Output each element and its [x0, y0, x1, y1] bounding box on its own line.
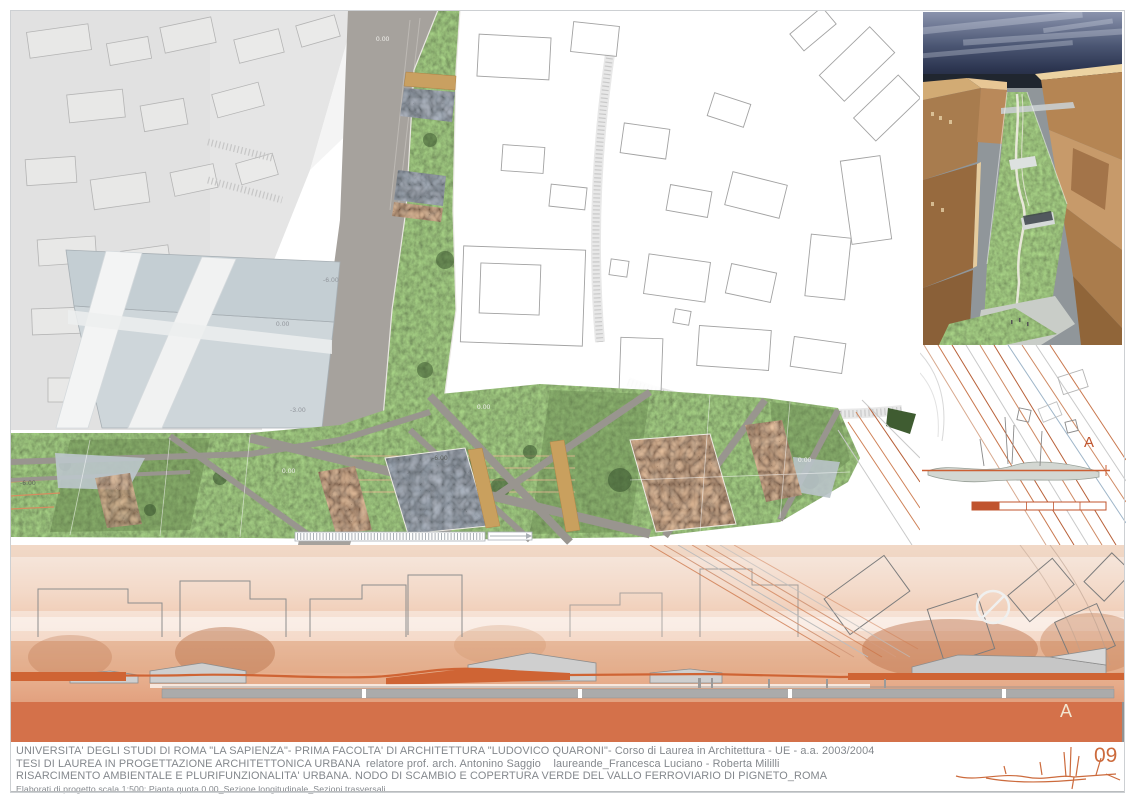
- thesis-line: TESI DI LAUREA IN PROGETTAZIONE ARCHITET…: [16, 758, 1016, 771]
- section-mark-a-profile: A: [1084, 434, 1094, 451]
- rail-fan-margin: [924, 345, 1126, 545]
- presentation-board: { "colors": { "accent_orange": "#d4714a"…: [0, 0, 1134, 810]
- section-mark-a-band: A: [1060, 701, 1072, 722]
- project-title-line: RISARCIMENTO AMBIENTALE E PLURIFUNZIONAL…: [16, 770, 1016, 783]
- university-line: UNIVERSITA' DEGLI STUDI DI ROMA "LA SAPI…: [16, 745, 1016, 758]
- site-plan-drawing: [10, 10, 920, 545]
- drawings-list-line: Elaborati di progetto scala 1:500: Piant…: [16, 784, 1016, 794]
- margin-street-arcs: [920, 353, 944, 441]
- sheet-number: 09: [1094, 744, 1117, 768]
- scale-bar: [972, 502, 1106, 510]
- orange-section-band: [10, 702, 1124, 742]
- title-block: UNIVERSITA' DEGLI STUDI DI ROMA "LA SAPI…: [16, 745, 1016, 794]
- mini-longitudinal-profile: [922, 369, 1110, 481]
- render-perspective-view: [923, 12, 1122, 345]
- bottom-rule: [10, 791, 1124, 792]
- glass-interchange: [56, 250, 340, 428]
- railway-track-symbol: [295, 532, 532, 541]
- longitudinal-section-strip: [10, 545, 1124, 702]
- right-margin-drawing: [920, 345, 1126, 545]
